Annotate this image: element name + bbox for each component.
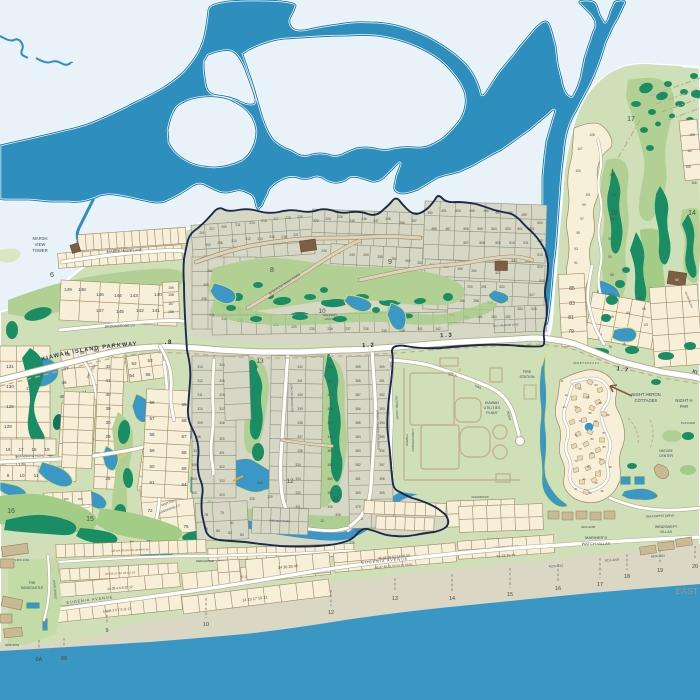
svg-text:9: 9 bbox=[7, 473, 10, 478]
svg-text:242: 242 bbox=[435, 327, 441, 331]
svg-text:3558-3553: 3558-3553 bbox=[5, 643, 20, 647]
svg-text:256: 256 bbox=[399, 221, 405, 225]
svg-text:143: 143 bbox=[130, 293, 138, 298]
svg-text:282: 282 bbox=[505, 315, 511, 319]
svg-text:510: 510 bbox=[509, 241, 515, 245]
svg-text:329: 329 bbox=[267, 495, 273, 499]
svg-text:69: 69 bbox=[181, 466, 187, 471]
svg-text:388: 388 bbox=[355, 379, 361, 383]
svg-text:61: 61 bbox=[149, 480, 155, 485]
svg-text:14: 14 bbox=[688, 210, 696, 217]
svg-text:310: 310 bbox=[197, 407, 203, 411]
svg-text:381: 381 bbox=[355, 477, 361, 481]
svg-text:399: 399 bbox=[379, 491, 385, 495]
svg-text:328: 328 bbox=[249, 497, 255, 501]
svg-text:92: 92 bbox=[608, 237, 612, 241]
svg-text:OCEANWOOD: OCEANWOOD bbox=[471, 495, 489, 499]
svg-text:52: 52 bbox=[131, 361, 137, 366]
svg-text:26: 26 bbox=[105, 476, 111, 481]
svg-text:508: 508 bbox=[479, 241, 485, 245]
svg-text:142: 142 bbox=[136, 308, 144, 313]
svg-text:321: 321 bbox=[219, 451, 225, 455]
svg-text:44: 44 bbox=[582, 477, 586, 481]
svg-text:390: 390 bbox=[379, 365, 385, 369]
svg-text:344: 344 bbox=[327, 379, 333, 383]
svg-text:30: 30 bbox=[105, 420, 111, 425]
svg-text:332: 332 bbox=[295, 491, 301, 495]
svg-text:107: 107 bbox=[577, 147, 583, 151]
svg-text:387: 387 bbox=[355, 393, 361, 397]
svg-text:337: 337 bbox=[297, 435, 303, 439]
svg-text:210: 210 bbox=[231, 239, 237, 243]
svg-text:313: 313 bbox=[197, 365, 203, 369]
svg-text:168: 168 bbox=[689, 133, 695, 137]
svg-text:75: 75 bbox=[586, 465, 590, 469]
svg-text:68: 68 bbox=[181, 450, 187, 455]
svg-text:60: 60 bbox=[675, 278, 679, 282]
svg-text:64: 64 bbox=[578, 387, 582, 391]
svg-text:312: 312 bbox=[197, 379, 203, 383]
svg-text:325: 325 bbox=[335, 513, 341, 517]
svg-text:283: 283 bbox=[491, 315, 497, 319]
svg-text:90: 90 bbox=[608, 255, 612, 259]
svg-text:145: 145 bbox=[116, 309, 124, 314]
svg-text:36: 36 bbox=[600, 489, 604, 493]
svg-text:STATION: STATION bbox=[519, 375, 534, 379]
svg-text:76: 76 bbox=[608, 345, 612, 349]
svg-text:206: 206 bbox=[201, 297, 207, 301]
svg-text:10: 10 bbox=[203, 622, 209, 628]
svg-text:196: 196 bbox=[77, 497, 82, 501]
svg-text:389: 389 bbox=[355, 365, 361, 369]
svg-text:15: 15 bbox=[86, 516, 94, 523]
svg-text:KESTREL COURT: KESTREL COURT bbox=[395, 396, 400, 420]
svg-text:336: 336 bbox=[297, 449, 303, 453]
svg-text:379: 379 bbox=[355, 505, 361, 509]
svg-text:304: 304 bbox=[191, 477, 197, 481]
svg-text:46: 46 bbox=[61, 380, 67, 385]
svg-text:88: 88 bbox=[610, 273, 614, 277]
svg-text:83: 83 bbox=[240, 533, 244, 537]
svg-text:333: 333 bbox=[295, 477, 301, 481]
svg-text:9: 9 bbox=[105, 628, 108, 634]
svg-text:317: 317 bbox=[219, 407, 225, 411]
svg-text:220: 220 bbox=[297, 215, 303, 219]
svg-text:140: 140 bbox=[154, 292, 162, 297]
svg-text:523: 523 bbox=[511, 259, 517, 263]
svg-text:157: 157 bbox=[168, 302, 174, 306]
svg-text:247: 247 bbox=[373, 219, 379, 223]
svg-text:322: 322 bbox=[219, 465, 225, 469]
svg-text:14: 14 bbox=[562, 405, 566, 409]
svg-text:213: 213 bbox=[249, 221, 255, 225]
svg-text:338: 338 bbox=[297, 421, 303, 425]
svg-text:15: 15 bbox=[507, 592, 513, 598]
svg-text:158: 158 bbox=[168, 293, 174, 297]
svg-text:380: 380 bbox=[355, 491, 361, 495]
svg-text:18: 18 bbox=[624, 574, 630, 580]
svg-text:67: 67 bbox=[181, 434, 187, 439]
svg-text:229: 229 bbox=[291, 325, 297, 329]
svg-text:201: 201 bbox=[199, 231, 205, 235]
svg-text:503: 503 bbox=[505, 227, 511, 231]
svg-text:101: 101 bbox=[585, 193, 591, 197]
svg-text:345: 345 bbox=[327, 393, 333, 397]
svg-text:88: 88 bbox=[61, 656, 67, 662]
svg-text:238: 238 bbox=[363, 327, 369, 331]
svg-text:254: 254 bbox=[363, 253, 369, 257]
svg-text:149: 149 bbox=[64, 287, 72, 292]
svg-text:488: 488 bbox=[431, 227, 437, 231]
svg-text:214: 214 bbox=[257, 237, 263, 241]
svg-text:93: 93 bbox=[574, 247, 578, 251]
svg-text:RED BAY ROAD: RED BAY ROAD bbox=[270, 519, 291, 524]
svg-text:221: 221 bbox=[293, 233, 299, 237]
svg-text:83: 83 bbox=[590, 437, 594, 441]
svg-text:19: 19 bbox=[44, 447, 50, 452]
svg-text:222: 222 bbox=[313, 219, 319, 223]
svg-text:71: 71 bbox=[574, 433, 578, 437]
svg-text:16: 16 bbox=[610, 210, 618, 217]
svg-text:KIAWAH: KIAWAH bbox=[485, 401, 499, 405]
svg-text:384: 384 bbox=[355, 435, 361, 439]
svg-text:520: 520 bbox=[499, 285, 505, 289]
svg-text:383: 383 bbox=[355, 449, 361, 453]
svg-text:320: 320 bbox=[219, 437, 225, 441]
svg-text:144: 144 bbox=[114, 293, 122, 298]
svg-text:14: 14 bbox=[449, 596, 455, 602]
svg-text:491: 491 bbox=[441, 209, 447, 213]
svg-text:493: 493 bbox=[455, 209, 461, 213]
svg-text:243: 243 bbox=[321, 249, 327, 253]
svg-text:240: 240 bbox=[349, 253, 355, 257]
svg-text:64: 64 bbox=[626, 311, 630, 315]
svg-text:84: 84 bbox=[594, 419, 598, 423]
svg-text:504: 504 bbox=[491, 227, 497, 231]
svg-text:266: 266 bbox=[457, 267, 463, 271]
svg-text:COTTAGES: COTTAGES bbox=[635, 398, 658, 403]
svg-text:17: 17 bbox=[18, 447, 24, 452]
svg-text:314: 314 bbox=[219, 363, 225, 367]
svg-text:20: 20 bbox=[692, 564, 698, 570]
svg-text:103: 103 bbox=[575, 169, 581, 173]
svg-text:78: 78 bbox=[204, 513, 208, 517]
svg-text:499: 499 bbox=[521, 213, 527, 217]
svg-text:85: 85 bbox=[569, 286, 575, 292]
svg-text:96: 96 bbox=[612, 193, 616, 197]
svg-text:341: 341 bbox=[297, 379, 303, 383]
svg-text:521: 521 bbox=[495, 271, 501, 275]
svg-text:70: 70 bbox=[578, 419, 582, 423]
svg-text:NATURE: NATURE bbox=[659, 449, 673, 453]
svg-text:211: 211 bbox=[235, 223, 240, 227]
svg-text:68: 68 bbox=[574, 405, 578, 409]
svg-text:. 8: . 8 bbox=[165, 340, 172, 346]
svg-text:260: 260 bbox=[471, 269, 477, 273]
svg-text:352: 352 bbox=[327, 477, 333, 481]
svg-text:58: 58 bbox=[149, 432, 155, 437]
svg-text:350: 350 bbox=[327, 449, 333, 453]
svg-text:73: 73 bbox=[578, 447, 582, 451]
svg-text:29: 29 bbox=[105, 434, 111, 439]
svg-text:NIGHT HERON: NIGHT HERON bbox=[631, 392, 660, 397]
svg-text:13: 13 bbox=[254, 365, 258, 369]
svg-text:66: 66 bbox=[586, 395, 590, 399]
svg-text:487: 487 bbox=[445, 227, 451, 231]
svg-text:79: 79 bbox=[598, 457, 602, 461]
svg-text:385: 385 bbox=[355, 421, 361, 425]
svg-text:166: 166 bbox=[691, 181, 697, 185]
svg-text:511: 511 bbox=[523, 241, 528, 245]
svg-text:87: 87 bbox=[602, 431, 606, 435]
svg-text:MERGANSER: MERGANSER bbox=[196, 559, 214, 563]
svg-text:239: 239 bbox=[381, 329, 387, 333]
svg-text:55: 55 bbox=[145, 372, 151, 377]
svg-text:284: 284 bbox=[517, 307, 523, 311]
svg-text:11: 11 bbox=[34, 473, 39, 478]
svg-text:131: 131 bbox=[6, 364, 14, 369]
svg-text:11: 11 bbox=[333, 496, 340, 503]
svg-text:343: 343 bbox=[327, 365, 333, 369]
svg-text:257: 257 bbox=[411, 219, 417, 223]
svg-text:205: 205 bbox=[203, 283, 209, 287]
svg-text:88: 88 bbox=[588, 411, 592, 415]
svg-text:167: 167 bbox=[687, 149, 693, 153]
svg-text:64: 64 bbox=[181, 482, 187, 487]
svg-text:97: 97 bbox=[580, 217, 584, 221]
svg-text:212: 212 bbox=[245, 237, 251, 241]
svg-text:77: 77 bbox=[598, 469, 602, 473]
svg-text:165: 165 bbox=[685, 165, 691, 169]
svg-text:99: 99 bbox=[582, 203, 586, 207]
svg-text:NIGHT H: NIGHT H bbox=[675, 398, 692, 403]
svg-text:290: 290 bbox=[467, 285, 473, 289]
svg-text:SANDCASTLE: SANDCASTLE bbox=[21, 586, 44, 590]
svg-text:42: 42 bbox=[105, 364, 111, 369]
svg-text:255: 255 bbox=[377, 255, 383, 259]
svg-text:303: 303 bbox=[191, 491, 197, 495]
svg-text:72: 72 bbox=[147, 508, 153, 513]
svg-text:347: 347 bbox=[327, 421, 333, 425]
svg-text:65: 65 bbox=[181, 402, 187, 407]
svg-text:76: 76 bbox=[183, 524, 189, 529]
svg-text:398: 398 bbox=[379, 477, 385, 481]
svg-text:TOWER: TOWER bbox=[32, 248, 48, 253]
svg-text:17: 17 bbox=[597, 582, 603, 588]
svg-text:204: 204 bbox=[207, 269, 213, 273]
svg-text:318: 318 bbox=[219, 421, 225, 425]
svg-text:506: 506 bbox=[463, 227, 469, 231]
svg-text:CENTER: CENTER bbox=[659, 454, 673, 458]
svg-text:248: 248 bbox=[385, 217, 391, 221]
svg-text:324: 324 bbox=[219, 493, 225, 497]
svg-text:12: 12 bbox=[286, 478, 294, 485]
svg-text:53: 53 bbox=[147, 358, 153, 363]
svg-text:353: 353 bbox=[327, 491, 333, 495]
svg-text:330: 330 bbox=[327, 505, 333, 509]
svg-text:382: 382 bbox=[355, 463, 361, 467]
svg-text:56: 56 bbox=[149, 400, 155, 405]
svg-text:513: 513 bbox=[537, 253, 543, 257]
svg-text:81: 81 bbox=[568, 315, 574, 321]
svg-text:49: 49 bbox=[608, 465, 612, 469]
svg-text:490: 490 bbox=[427, 211, 433, 215]
svg-text:129: 129 bbox=[6, 404, 14, 409]
svg-text:397: 397 bbox=[379, 463, 385, 467]
svg-text:1 . 3: 1 . 3 bbox=[440, 333, 453, 339]
svg-text:FIRE: FIRE bbox=[523, 370, 532, 374]
svg-text:86: 86 bbox=[606, 413, 610, 417]
svg-text:13: 13 bbox=[256, 358, 264, 365]
svg-text:326: 326 bbox=[257, 481, 263, 485]
svg-text:MARSH: MARSH bbox=[32, 236, 47, 241]
svg-text:246: 246 bbox=[361, 217, 367, 221]
svg-text:10: 10 bbox=[318, 308, 326, 315]
svg-text:95: 95 bbox=[576, 231, 580, 235]
svg-text:342: 342 bbox=[297, 365, 303, 369]
svg-text:509: 509 bbox=[495, 241, 501, 245]
svg-text:309: 309 bbox=[197, 421, 203, 425]
svg-text:91: 91 bbox=[574, 261, 578, 265]
svg-text:311: 311 bbox=[197, 393, 202, 397]
svg-text:346: 346 bbox=[327, 407, 333, 411]
svg-text:263: 263 bbox=[417, 261, 423, 265]
svg-text:245: 245 bbox=[349, 219, 355, 223]
svg-text:507: 507 bbox=[463, 241, 469, 245]
svg-text:39: 39 bbox=[105, 406, 111, 411]
svg-text:11: 11 bbox=[561, 379, 564, 383]
svg-text:392: 392 bbox=[379, 393, 385, 397]
svg-text:235: 235 bbox=[309, 327, 315, 331]
svg-text:505: 505 bbox=[477, 227, 483, 231]
svg-text:41: 41 bbox=[105, 378, 111, 383]
svg-text:148: 148 bbox=[78, 287, 86, 292]
svg-text:84: 84 bbox=[216, 529, 220, 533]
svg-text:348: 348 bbox=[327, 435, 333, 439]
svg-text:340: 340 bbox=[297, 393, 303, 397]
svg-text:CONSERVANCY: CONSERVANCY bbox=[411, 429, 415, 452]
svg-text:80: 80 bbox=[602, 445, 606, 449]
svg-text:79: 79 bbox=[220, 511, 224, 515]
svg-text:253: 253 bbox=[391, 257, 397, 261]
svg-text:1 . 2: 1 . 2 bbox=[362, 343, 375, 349]
svg-text:207: 207 bbox=[209, 227, 215, 231]
svg-text:9: 9 bbox=[388, 259, 392, 266]
svg-text:286: 286 bbox=[473, 299, 479, 303]
svg-text:12: 12 bbox=[328, 610, 334, 616]
svg-text:12: 12 bbox=[320, 519, 324, 523]
svg-text:4224-4295: 4224-4295 bbox=[581, 525, 596, 529]
svg-text:500: 500 bbox=[537, 221, 543, 225]
svg-text:291: 291 bbox=[481, 285, 487, 289]
svg-text:66: 66 bbox=[181, 418, 187, 423]
svg-text:94: 94 bbox=[610, 217, 614, 221]
svg-text:82: 82 bbox=[228, 531, 232, 535]
svg-text:8: 8 bbox=[270, 267, 274, 274]
svg-text:224: 224 bbox=[325, 217, 331, 221]
svg-text:146: 146 bbox=[96, 292, 104, 297]
svg-text:128: 128 bbox=[4, 424, 12, 429]
svg-text:VILLAS: VILLAS bbox=[660, 530, 673, 534]
svg-text:54: 54 bbox=[129, 373, 135, 378]
svg-text:81: 81 bbox=[230, 521, 234, 525]
svg-text:159: 159 bbox=[168, 286, 174, 290]
svg-text:60: 60 bbox=[149, 464, 155, 469]
svg-text:104: 104 bbox=[609, 173, 615, 177]
svg-text:351: 351 bbox=[327, 463, 333, 467]
svg-text:241: 241 bbox=[417, 327, 423, 331]
svg-text:63: 63 bbox=[644, 323, 648, 327]
svg-text:73: 73 bbox=[622, 343, 626, 347]
svg-text:215: 215 bbox=[261, 219, 267, 223]
svg-text:517: 517 bbox=[529, 293, 535, 297]
svg-text:18: 18 bbox=[31, 447, 37, 452]
svg-text:PAR: PAR bbox=[680, 404, 688, 409]
svg-text:34: 34 bbox=[588, 491, 592, 495]
svg-text:83: 83 bbox=[569, 301, 575, 307]
svg-text:386: 386 bbox=[355, 407, 361, 411]
svg-text:VIEW: VIEW bbox=[35, 242, 46, 247]
svg-text:16: 16 bbox=[555, 586, 561, 592]
svg-text:495: 495 bbox=[469, 209, 475, 213]
svg-text:HOUSE: HOUSE bbox=[325, 317, 336, 321]
svg-text:147: 147 bbox=[96, 308, 104, 313]
svg-text:226: 226 bbox=[337, 215, 343, 219]
svg-text:108: 108 bbox=[589, 133, 595, 137]
svg-text:323: 323 bbox=[219, 479, 225, 483]
svg-text:MARINERʼS: MARINERʼS bbox=[585, 535, 607, 540]
svg-text:17: 17 bbox=[627, 116, 635, 123]
svg-text:262: 262 bbox=[405, 259, 411, 263]
svg-text:79: 79 bbox=[568, 329, 574, 335]
svg-text:209: 209 bbox=[221, 225, 227, 229]
svg-text:306: 306 bbox=[191, 463, 197, 467]
svg-text:237: 237 bbox=[345, 327, 351, 331]
svg-text:1360-1393: 1360-1393 bbox=[15, 558, 30, 562]
svg-text:THE: THE bbox=[29, 581, 37, 585]
svg-text:10 9 8 7 6 5 4 3 2 1: 10 9 8 7 6 5 4 3 2 1 bbox=[573, 361, 599, 365]
svg-text:316: 316 bbox=[219, 393, 225, 397]
svg-text:130: 130 bbox=[6, 384, 14, 389]
svg-text:219: 219 bbox=[285, 216, 291, 220]
svg-text:74: 74 bbox=[574, 459, 578, 463]
svg-text:65: 65 bbox=[642, 307, 646, 311]
svg-text:19: 19 bbox=[657, 568, 663, 574]
svg-text:16: 16 bbox=[7, 508, 15, 515]
svg-text:82: 82 bbox=[590, 451, 594, 455]
svg-text:6: 6 bbox=[50, 270, 54, 279]
svg-text:63: 63 bbox=[594, 383, 598, 387]
svg-text:156: 156 bbox=[168, 310, 174, 314]
svg-text:45: 45 bbox=[594, 481, 598, 485]
svg-text:12: 12 bbox=[564, 393, 568, 397]
svg-text:141: 141 bbox=[152, 308, 160, 313]
svg-text:514: 514 bbox=[537, 265, 543, 269]
svg-text:496: 496 bbox=[483, 209, 489, 213]
svg-text:PLANT: PLANT bbox=[486, 411, 498, 415]
svg-text:16: 16 bbox=[5, 447, 11, 452]
svg-text:339: 339 bbox=[297, 407, 303, 411]
svg-text:13: 13 bbox=[392, 596, 398, 602]
svg-text:8A: 8A bbox=[36, 657, 43, 663]
svg-text:WATCH VILLAS: WATCH VILLAS bbox=[582, 541, 611, 546]
svg-text:WINDSWEPT: WINDSWEPT bbox=[655, 525, 678, 529]
svg-text:KIAWAH: KIAWAH bbox=[405, 434, 409, 446]
svg-text:89: 89 bbox=[598, 401, 602, 405]
svg-text:502: 502 bbox=[517, 227, 523, 231]
svg-text:518: 518 bbox=[531, 307, 537, 311]
svg-text:EAST: EAST bbox=[676, 586, 698, 596]
